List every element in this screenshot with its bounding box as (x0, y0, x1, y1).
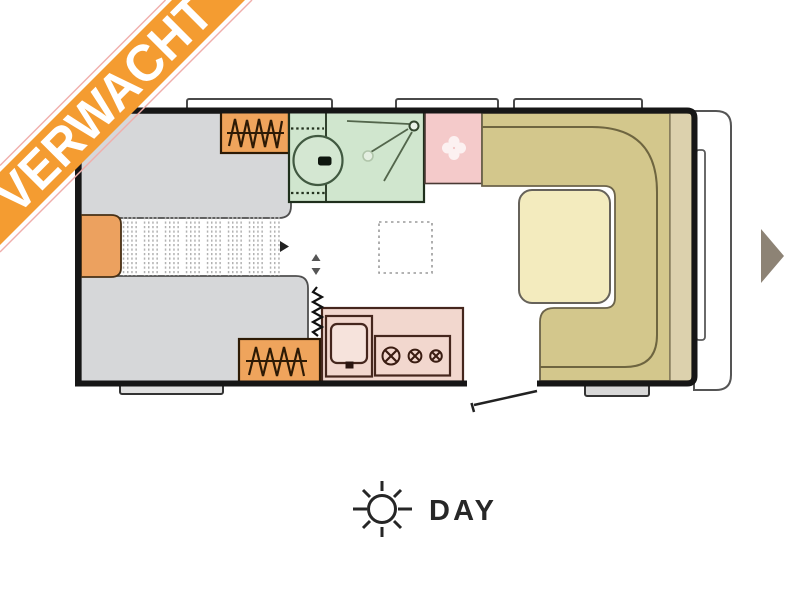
svg-text:DAY: DAY (429, 495, 497, 527)
